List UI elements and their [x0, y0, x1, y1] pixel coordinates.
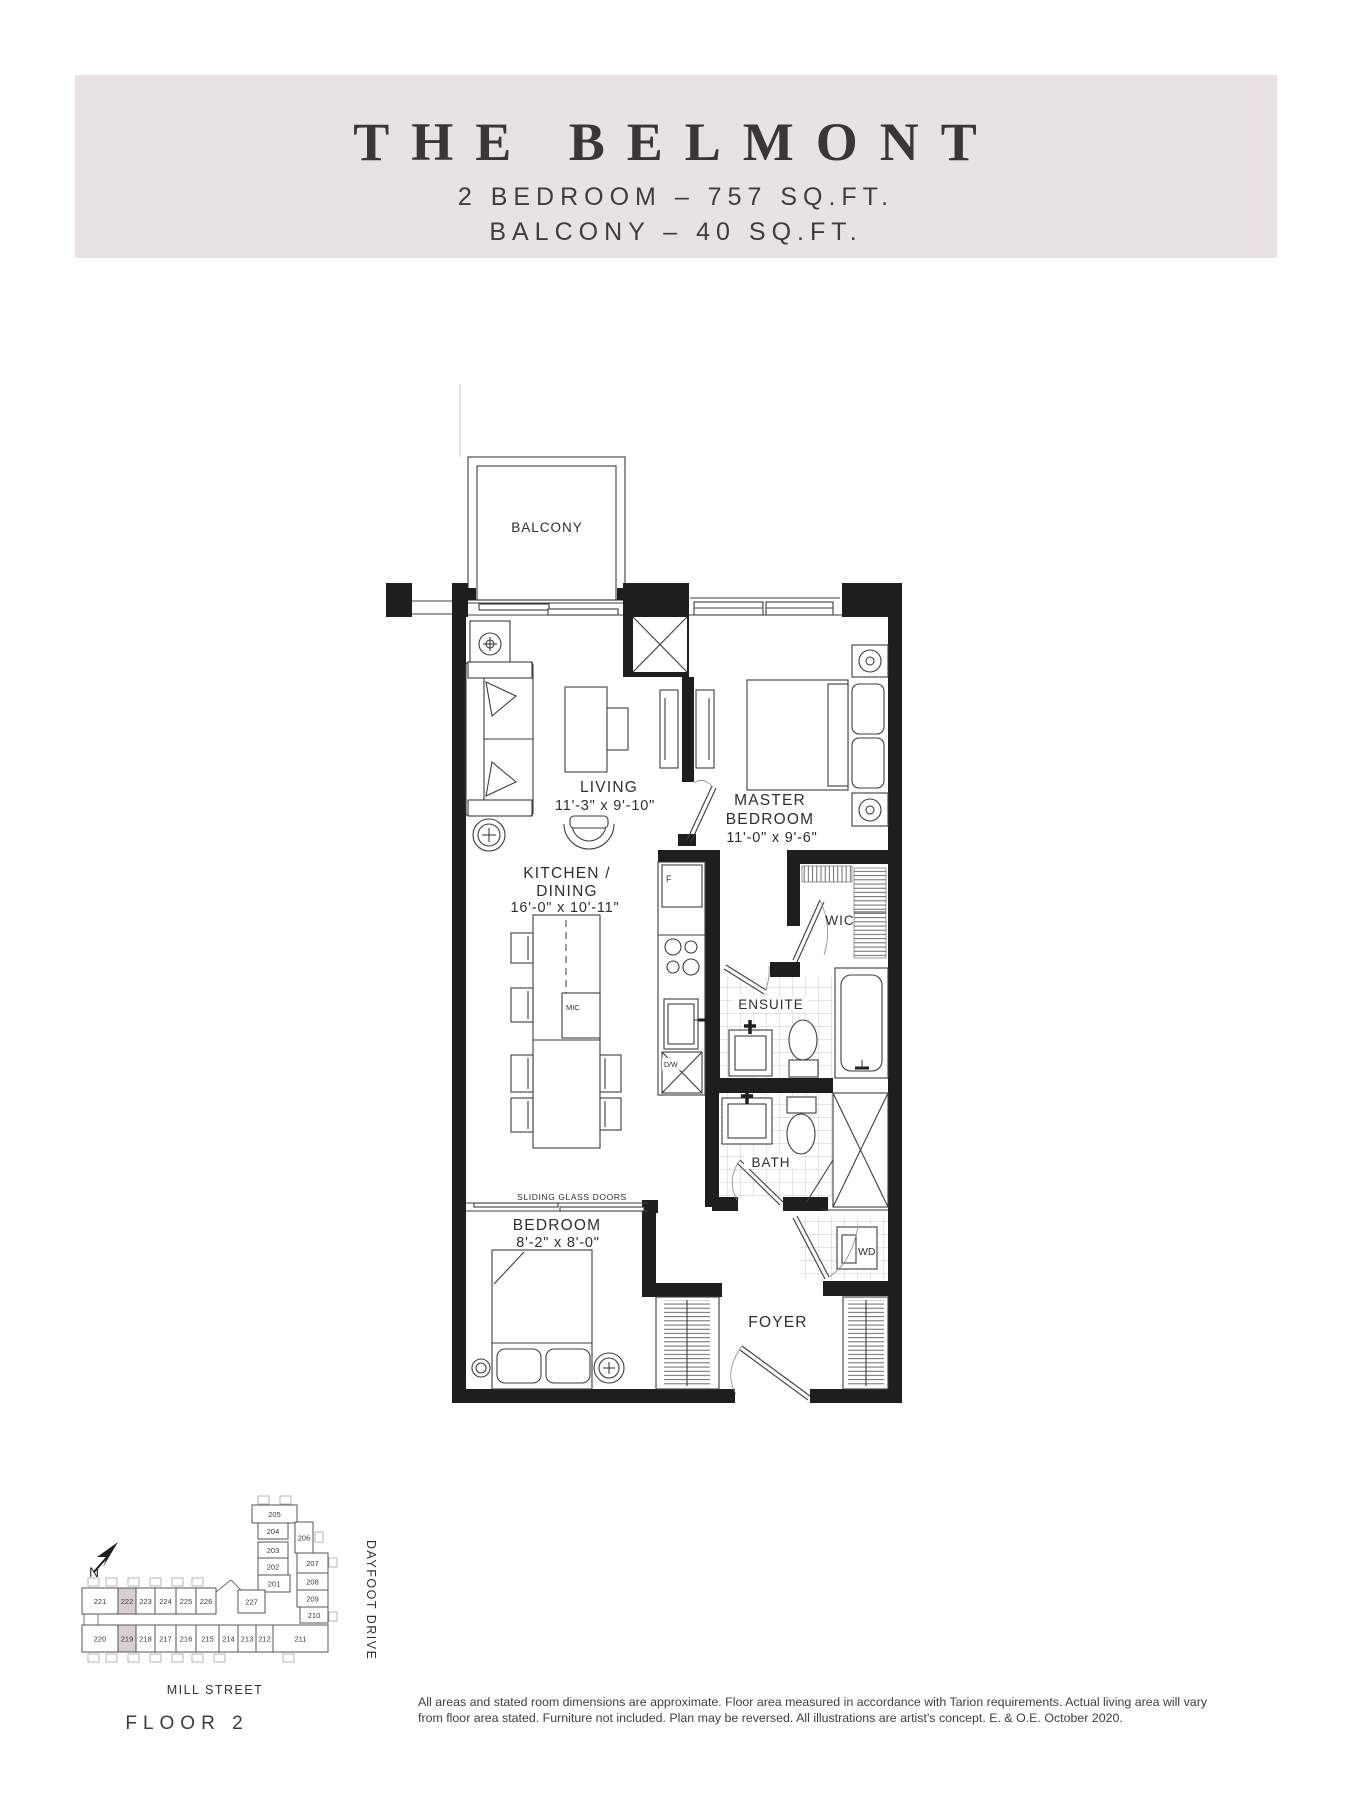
keyplan-unit-label: 209	[306, 1595, 319, 1604]
kitchen-dims: 16'-0" x 10'-11"	[511, 900, 620, 916]
bath-sink	[722, 1090, 772, 1144]
sofa	[466, 662, 533, 816]
balcony-summary: BALCONY – 40 SQ.FT.	[75, 218, 1277, 247]
keyplan-unit-label: 220	[94, 1635, 107, 1644]
armchair	[564, 816, 614, 849]
keyplan-unit-label: 215	[201, 1635, 214, 1644]
street-right-label: DAYFOOT DRIVE	[364, 1540, 378, 1660]
keyplan-unit-label: 221	[94, 1597, 107, 1606]
header-band: THE BELMONT 2 BEDROOM – 757 SQ.FT. BALCO…	[75, 75, 1277, 258]
keyplan-unit-label: 224	[159, 1597, 172, 1606]
bath-label: BATH	[751, 1155, 790, 1170]
disclaimer-line-1: All areas and stated room dimensions are…	[418, 1694, 1302, 1710]
keyplan-unit-label: 226	[200, 1597, 213, 1606]
wic-closet: WIC	[793, 866, 886, 962]
keyplan-unit-label: 205	[268, 1510, 281, 1519]
keyplan-unit-label: 201	[268, 1580, 281, 1589]
kitchen-label-1: KITCHEN /	[523, 865, 610, 882]
keyplan-units: 2212222232242252262202192182172162152142…	[82, 1505, 328, 1652]
keyplan-unit-label: 218	[139, 1635, 152, 1644]
bedroom-dims: 8'-2" x 8'-0"	[516, 1235, 599, 1251]
stove	[665, 939, 699, 975]
keyplan-unit-label: 212	[258, 1635, 271, 1644]
living-label: LIVING	[580, 779, 638, 796]
bedroom-label: BEDROOM	[513, 1217, 602, 1234]
living-dims: 11'-3" x 9'-10"	[555, 798, 655, 814]
kitchen-sink	[664, 999, 706, 1049]
keyplan-unit-label: 225	[180, 1597, 193, 1606]
balcony-slider	[468, 603, 623, 615]
tv-console	[660, 690, 678, 768]
disclaimer-line-2: from floor area stated. Furniture not in…	[418, 1710, 1302, 1726]
floor-label: FLOOR 2	[125, 1713, 248, 1734]
dishwasher-label: D/W	[664, 1062, 678, 1069]
master-door	[687, 780, 716, 842]
nightstand-top	[852, 645, 888, 677]
keyplan-unit-label: 217	[159, 1635, 172, 1644]
page-title: THE BELMONT	[75, 111, 1277, 173]
fridge-label: F	[666, 874, 672, 884]
wic-label: WIC	[825, 913, 854, 928]
keyplan-unit-label: 208	[306, 1578, 319, 1587]
bedroom-bed	[492, 1250, 592, 1389]
keyplan-unit-label: 207	[306, 1559, 319, 1568]
side-table	[473, 819, 505, 851]
master-label-1: MASTER	[734, 792, 806, 809]
coffee-table	[565, 687, 607, 772]
bathtub	[835, 968, 888, 1078]
keyplan-unit-label: 206	[298, 1534, 311, 1543]
keyplan-unit-label: 216	[180, 1635, 193, 1644]
entry-door	[731, 1346, 810, 1400]
wd-label: WD	[858, 1246, 876, 1258]
keyplan-unit-label: 222	[121, 1597, 134, 1606]
keyplan-unit-label: 211	[295, 1635, 307, 1644]
bedroom-side-table-right	[594, 1353, 624, 1383]
keyplan-unit-label: 213	[241, 1635, 254, 1644]
unit-summary: 2 BEDROOM – 757 SQ.FT.	[75, 183, 1277, 212]
bedroom-side-table-left	[472, 1359, 490, 1377]
ensuite-label: ENSUITE	[738, 997, 804, 1012]
keyplan-unit-label: 202	[267, 1563, 280, 1572]
balcony: BALCONY	[466, 457, 627, 600]
foyer-closet	[843, 1297, 888, 1389]
ceiling-fixture-icon	[470, 621, 510, 667]
sliding-doors-label: SLIDING GLASS DOORS	[517, 1192, 627, 1202]
master-windows	[689, 598, 842, 615]
dishwasher: D/W	[662, 1052, 702, 1093]
north-arrow-icon: N	[89, 1542, 118, 1580]
disclaimer: All areas and stated room dimensions are…	[418, 1694, 1302, 1727]
foyer-label: FOYER	[748, 1314, 807, 1331]
ensuite-toilet	[789, 1020, 818, 1077]
keyplan-unit-label: 210	[308, 1611, 321, 1620]
keyplan: N 22122222322422522622021921821721621521…	[60, 1480, 390, 1740]
master-dresser	[696, 690, 714, 768]
dining-table: MIC	[533, 915, 600, 1148]
master-bed	[747, 680, 884, 790]
microwave-label: MIC	[566, 1003, 580, 1012]
kitchen-label-2: DINING	[536, 883, 597, 900]
bedroom-closet	[656, 1297, 719, 1389]
floor-plan: BALCONY	[380, 380, 940, 1440]
bedroom-slider: SLIDING GLASS DOORS	[466, 1192, 648, 1211]
keyplan-unit-label: 223	[139, 1597, 152, 1606]
keyplan-unit-label: 227	[245, 1598, 258, 1607]
kitchen-counter: F D/W	[658, 862, 706, 1095]
master-dims: 11'-0" x 9'-6"	[726, 830, 817, 846]
end-table	[607, 708, 628, 750]
master-label-2: BEDROOM	[726, 811, 815, 828]
shaft	[623, 583, 689, 677]
keyplan-unit-label: 203	[267, 1546, 280, 1555]
bath-toilet	[787, 1097, 816, 1154]
keyplan-unit-label: 219	[121, 1635, 134, 1644]
keyplan-unit-label: 214	[222, 1635, 235, 1644]
street-bottom-label: MILL STREET	[167, 1683, 264, 1697]
nightstand-bottom	[852, 793, 888, 826]
balcony-label: BALCONY	[511, 520, 583, 535]
keyplan-unit-label: 204	[267, 1527, 280, 1536]
